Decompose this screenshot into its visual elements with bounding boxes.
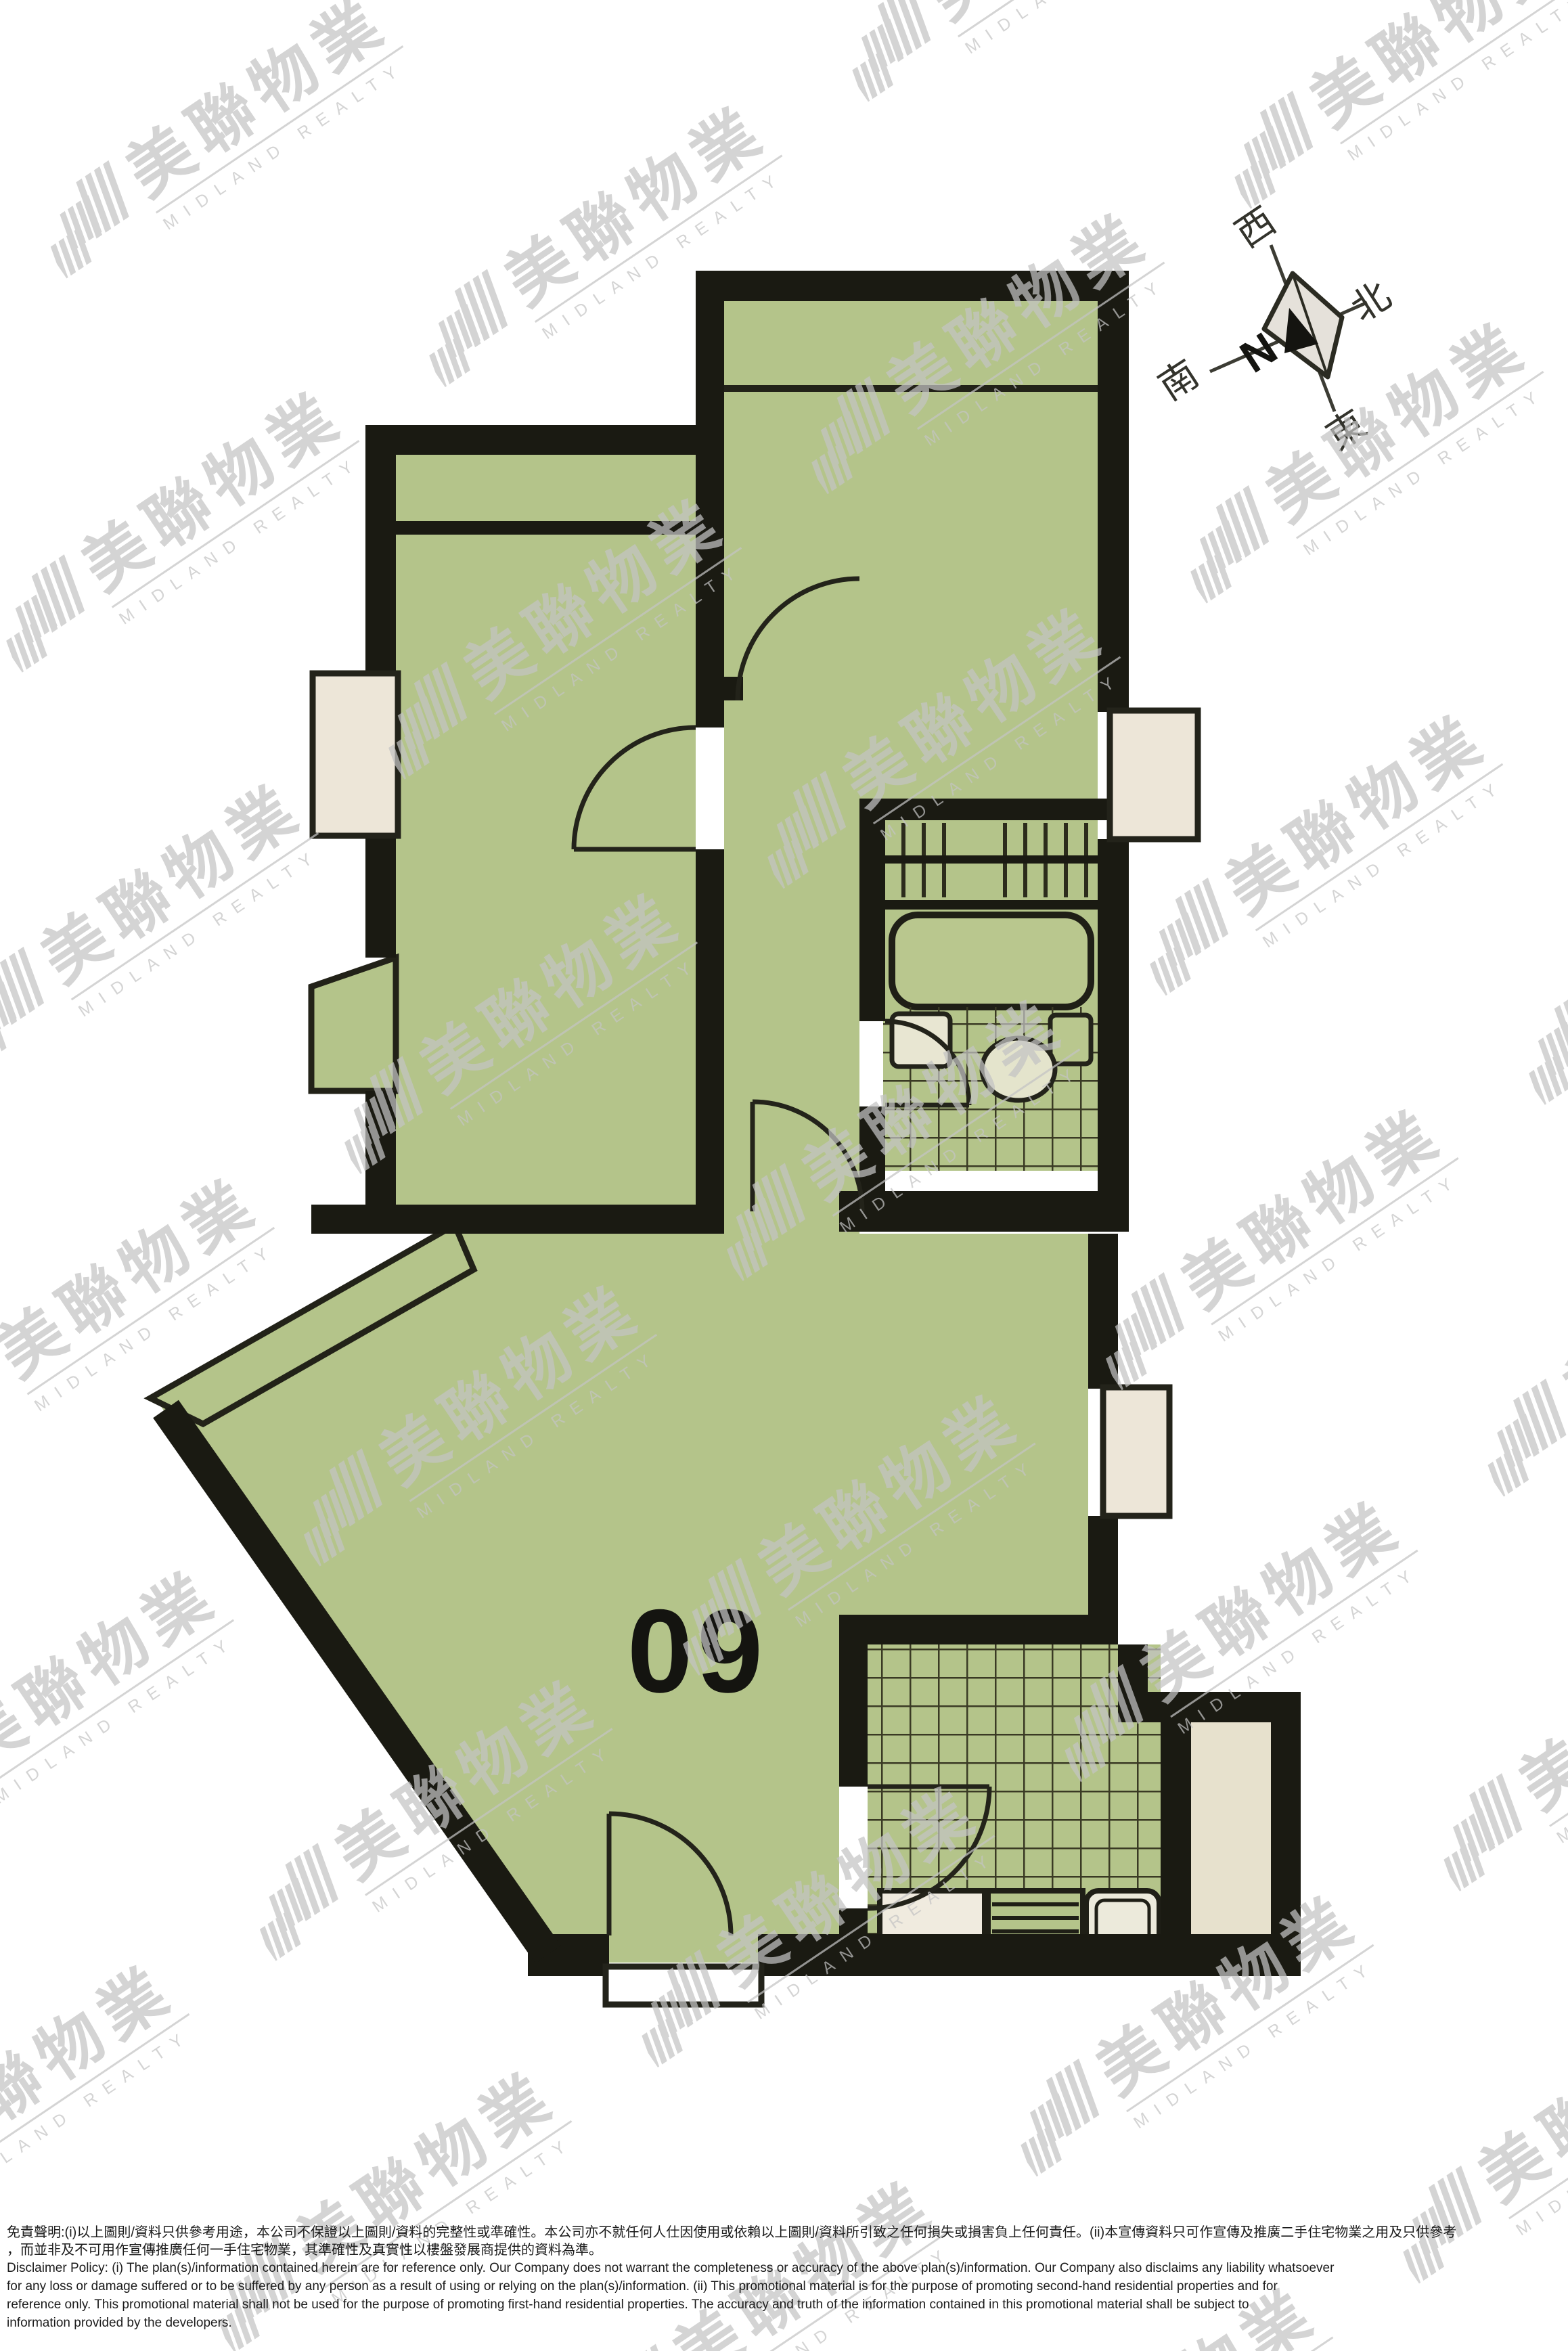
wall-br2-bottom — [311, 1205, 724, 1234]
wall-br1-top — [696, 271, 1129, 301]
wall-br2-right-lower — [696, 849, 724, 1234]
wall-living-right-lower — [1088, 1516, 1118, 1615]
wall-kitchen-left-upper — [839, 1644, 868, 1787]
wall-kitchen-right-stub — [1118, 1644, 1148, 1692]
bath-divider-wall — [883, 900, 1098, 910]
compass-label-east: 東 — [1319, 402, 1374, 458]
disclaimer-en-line4: information provided by the developers. — [7, 2314, 1563, 2332]
wall-kitchen-top — [839, 1615, 1118, 1644]
wall-bath-left-upper — [859, 820, 885, 1021]
wall-living-right-upper — [1088, 1234, 1118, 1389]
disclaimer-zh-line1: 免責聲明:(i)以上圖則/資料只供參考用途，本公司不保證以上圖則/資料的完整性或… — [7, 2224, 1563, 2241]
compass-label-north: 北 — [1343, 273, 1398, 330]
wall-br2-left-mid — [365, 836, 396, 958]
wall-bottom-main — [758, 1934, 1301, 1976]
disclaimer-en-line1: Disclaimer Policy: (i) The plan(s)/infor… — [7, 2259, 1563, 2277]
disclaimer-en-line3: reference only. This promotional materia… — [7, 2296, 1563, 2314]
toilet-tank — [1050, 1015, 1091, 1064]
wall-br1-right — [1098, 271, 1129, 712]
wall-kitchen-utility-divider — [1161, 1722, 1191, 1963]
wall-br2-left-upper — [365, 425, 396, 677]
toilet-bowl — [982, 1038, 1055, 1100]
wall-bath-right — [1098, 839, 1129, 1191]
wall-utility-right — [1271, 1692, 1301, 1976]
bathroom-fixtures — [883, 820, 1098, 1171]
ac-platform — [311, 958, 396, 1091]
compass-label-south: 南 — [1151, 352, 1206, 408]
wall-br1-bath-divider — [859, 799, 1129, 820]
floor-plan-page: 09 N 西 北 南 東 — [0, 0, 1568, 2351]
disclaimer: 免責聲明:(i)以上圖則/資料只供參考用途，本公司不保證以上圖則/資料的完整性或… — [7, 2224, 1563, 2332]
wall-utility-step — [1118, 1692, 1279, 1722]
window-right-lower — [1103, 1387, 1169, 1516]
wall-br2-closet-divider — [396, 521, 696, 535]
bedroom2-floor — [396, 453, 696, 1205]
disclaimer-zh-line2: ，而並非及不可用作宣傳推廣任何一手住宅物業，其準確性及真實性以樓盤發展商提供的資… — [7, 2241, 1563, 2259]
floor-plan: 09 N 西 北 南 東 — [0, 0, 1568, 2351]
wall-bath-left-lower — [859, 1106, 885, 1191]
wall-br2-right-upper — [696, 455, 724, 727]
entrance-porch — [606, 1967, 761, 2005]
window-left — [313, 673, 398, 836]
window-right-upper — [1110, 711, 1198, 839]
wall-bath-bottom — [839, 1191, 1129, 1232]
bathtub — [892, 915, 1091, 1007]
compass-label-west: 西 — [1228, 199, 1283, 256]
compass: N 西 北 南 東 — [1151, 199, 1398, 458]
disclaimer-en-line2: for any loss or damage suffered or to be… — [7, 2277, 1563, 2296]
hallway-floor — [724, 677, 859, 1234]
wall-br2-top — [365, 425, 724, 455]
unit-number: 09 — [627, 1586, 767, 1718]
utility-floor — [1191, 1722, 1271, 1963]
